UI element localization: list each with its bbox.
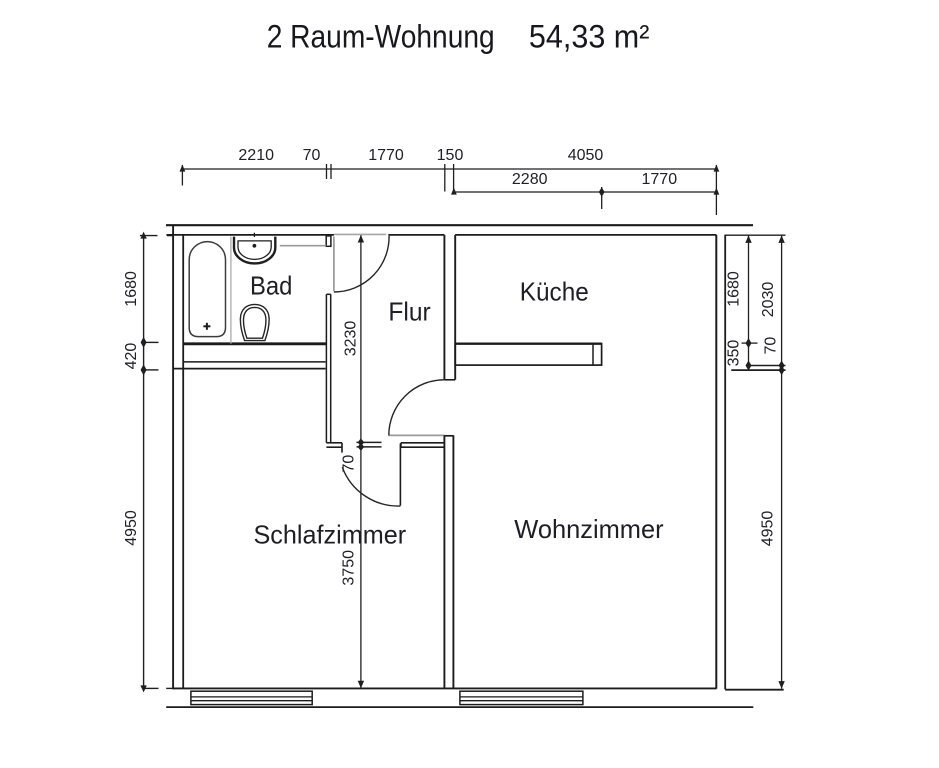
svg-text:70: 70 bbox=[763, 337, 780, 355]
svg-text:1680: 1680 bbox=[123, 271, 140, 307]
svg-text:1770: 1770 bbox=[642, 171, 678, 188]
svg-text:2030: 2030 bbox=[760, 282, 777, 318]
svg-text:Küche: Küche bbox=[520, 277, 589, 307]
svg-text:420: 420 bbox=[123, 343, 140, 370]
svg-text:2210: 2210 bbox=[238, 147, 274, 164]
svg-text:350: 350 bbox=[726, 340, 743, 367]
svg-text:70: 70 bbox=[303, 147, 321, 164]
svg-text:150: 150 bbox=[437, 147, 464, 164]
svg-text:Flur: Flur bbox=[388, 296, 431, 326]
svg-text:54,33 m²: 54,33 m² bbox=[529, 18, 650, 54]
svg-text:4950: 4950 bbox=[123, 510, 140, 546]
svg-text:3230: 3230 bbox=[343, 321, 360, 357]
svg-text:Bad: Bad bbox=[250, 271, 292, 301]
svg-text:4050: 4050 bbox=[568, 147, 604, 164]
svg-text:2280: 2280 bbox=[512, 171, 548, 188]
svg-text:4950: 4950 bbox=[760, 511, 777, 547]
svg-text:1680: 1680 bbox=[726, 271, 743, 307]
svg-text:Wohnzimmer: Wohnzimmer bbox=[514, 514, 664, 544]
svg-text:Schlafzimmer: Schlafzimmer bbox=[254, 520, 407, 550]
svg-text:1770: 1770 bbox=[368, 147, 404, 164]
svg-text:2 Raum-Wohnung: 2 Raum-Wohnung bbox=[267, 18, 495, 54]
svg-text:3750: 3750 bbox=[341, 550, 358, 586]
